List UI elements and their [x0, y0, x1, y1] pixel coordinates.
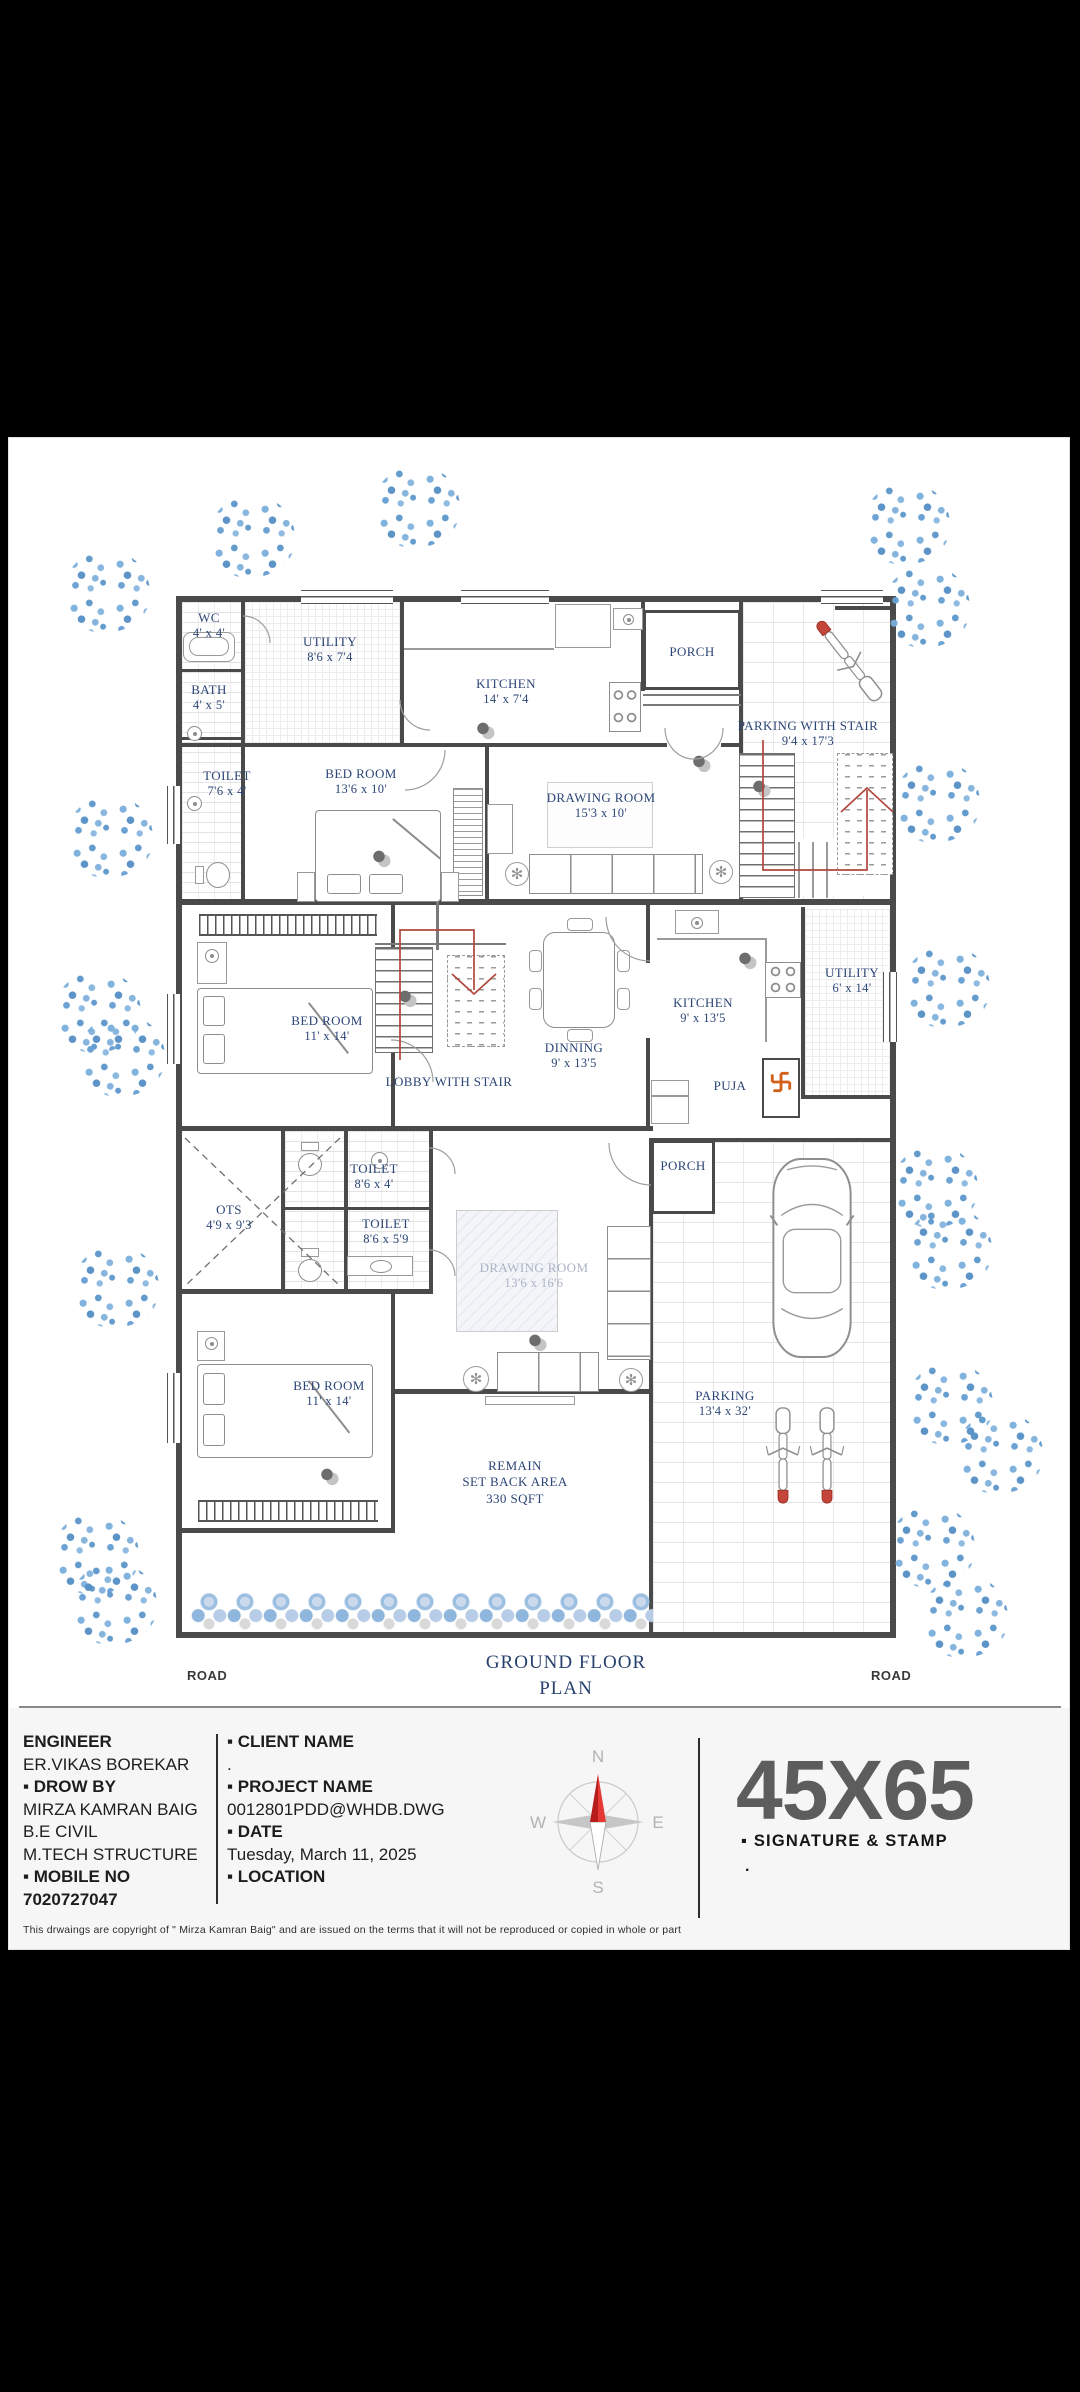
client-heading: ▪ CLIENT NAME [227, 1731, 487, 1754]
tree-icon [79, 1015, 165, 1097]
road-label-right: ROAD [871, 1668, 911, 1683]
room-label-bath: BATH 4' x 5' [177, 682, 241, 714]
room-label-toilet-b2: TOILET 8'6 x 5'9 [321, 1216, 451, 1248]
tree-icon [904, 946, 990, 1028]
room-label-parking-stair: PARKING WITH STAIR 9'4 x 17'3 [725, 718, 891, 750]
compass-east: E [652, 1813, 663, 1832]
project-column: ▪ CLIENT NAME . ▪ PROJECT NAME 0012801PD… [227, 1731, 487, 1889]
tree-icon [884, 566, 970, 648]
room-label-toilet-b1: TOILET 8'6 x 4' [309, 1161, 439, 1193]
engineer-column: ENGINEER ER.VIKAS BOREKAR ▪ DROW BY MIRZ… [23, 1731, 218, 1911]
room-label-lobby: LOBBY WITH STAIR [369, 1074, 529, 1090]
room-label-bedroom-top: BED ROOM 13'6 x 10' [291, 766, 431, 798]
room-label-porch-top: PORCH [643, 644, 741, 660]
titleblock-divider [19, 1706, 1061, 1708]
copyright-note: This drwaings are copyright of " Mirza K… [23, 1924, 681, 1936]
date-heading: ▪ DATE [227, 1821, 487, 1844]
tree-icon [894, 761, 980, 843]
room-label-kitchen-mid: KITCHEN 9' x 13'5 [637, 995, 769, 1027]
drawing-sheet: WC 4' x 4' BATH 4' x 5' TOILET 7'6 x 4' … [8, 437, 1070, 1950]
room-label-utility-mid: UTILITY 6' x 14' [809, 965, 895, 997]
flower-bed [191, 1588, 653, 1634]
room-label-bedroom-bottom: BED ROOM 11' x 14' [259, 1378, 399, 1410]
titleblock-rule [216, 1734, 218, 1904]
drawby-heading: ▪ DROW BY [23, 1776, 218, 1799]
tree-icon [73, 1246, 159, 1328]
project-heading: ▪ PROJECT NAME [227, 1776, 487, 1799]
tree-icon [64, 551, 150, 633]
room-label-utility-top: UTILITY 8'6 x 7'4 [264, 634, 396, 666]
drawby-name: MIRZA KAMRAN BAIG [23, 1799, 218, 1822]
mobile-heading: ▪ MOBILE NO [23, 1866, 218, 1889]
engineer-heading: ENGINEER [23, 1731, 218, 1754]
room-label-ots: OTS 4'9 x 9'3 [184, 1202, 274, 1234]
signature-value: . [745, 1858, 749, 1876]
mobile-number: 7020727047 [23, 1889, 218, 1912]
drawby-qualification-1: B.E CIVIL [23, 1821, 218, 1844]
room-label-wc: WC 4' x 4' [177, 610, 241, 642]
signature-heading: ▪ SIGNATURE & STAMP [741, 1832, 948, 1851]
room-label-drawing-bottom: DRAWING ROOM 13'6 x 16'6 [464, 1260, 604, 1292]
room-label-drawing-top: DRAWING ROOM 15'3 x 10' [533, 790, 669, 822]
tree-icon [374, 466, 460, 548]
road-label-left: ROAD [187, 1668, 227, 1683]
tree-icon [67, 796, 153, 878]
project-value: 0012801PDD@WHDB.DWG [227, 1799, 487, 1822]
tree-icon [922, 1576, 1008, 1658]
compass-south: S [592, 1878, 603, 1897]
tree-icon [957, 1412, 1043, 1494]
titleblock-rule [698, 1738, 700, 1918]
client-value: . [227, 1754, 487, 1777]
date-value: Tuesday, March 11, 2025 [227, 1844, 487, 1867]
tree-icon [209, 496, 295, 578]
room-label-toilet-top: TOILET 7'6 x 4' [187, 768, 267, 800]
tree-icon [864, 483, 950, 565]
room-label-setback: REMAIN SET BACK AREA 330 SQFT [439, 1458, 591, 1507]
drawby-qualification-2: M.TECH STRUCTURE [23, 1844, 218, 1867]
compass-north: N [592, 1747, 604, 1766]
plot-size: 45X65 [736, 1748, 974, 1832]
compass-west: W [530, 1813, 546, 1832]
tree-icon [71, 1563, 157, 1645]
tree-icon [906, 1208, 992, 1290]
compass-rose-icon: N S W E [528, 1738, 668, 1898]
room-label-bedroom-mid: BED ROOM 11' x 14' [257, 1013, 397, 1045]
room-label-kitchen-top: KITCHEN 14' x 7'4 [439, 676, 573, 708]
room-label-puja: PUJA [701, 1078, 759, 1094]
location-heading: ▪ LOCATION [227, 1866, 487, 1889]
room-label-porch-bottom: PORCH [653, 1158, 713, 1174]
room-label-dining: DINNING 9' x 13'5 [509, 1040, 639, 1072]
plan-title: GROUND FLOOR PLAN [451, 1650, 681, 1701]
engineer-name: ER.VIKAS BOREKAR [23, 1754, 218, 1777]
phone-screen: WC 4' x 4' BATH 4' x 5' TOILET 7'6 x 4' … [0, 0, 1080, 2392]
room-label-parking: PARKING 13'4 x 32' [655, 1388, 795, 1420]
